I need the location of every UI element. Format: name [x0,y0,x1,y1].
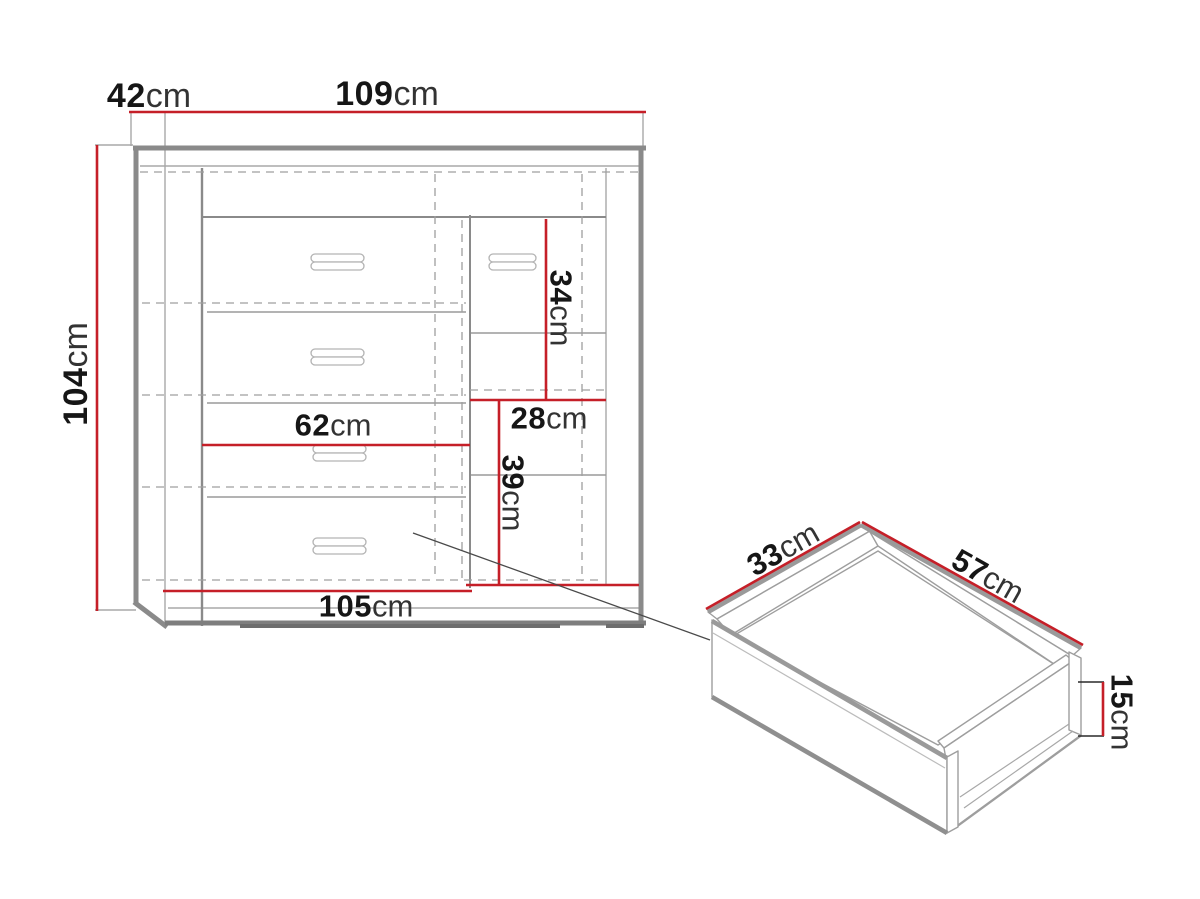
drawer-handle [313,538,366,554]
dim-drawer-height-label: 15cm [1107,674,1138,751]
dim-unit: cm [544,305,579,346]
drawer-handle [311,349,364,365]
dim-unit: cm [393,75,438,113]
dim-right-lower-height-label: 39cm [498,455,529,532]
cabinet-dimension-lines [97,112,646,611]
dim-value: 34 [544,270,579,305]
dim-unit: cm [330,408,371,443]
dim-depth-label: 42cm [107,79,191,113]
dim-value: 62 [295,408,330,443]
diagram-linework [0,0,1200,899]
drawer-handle-small [489,254,536,270]
cabinet-front-view [95,112,646,627]
drawer-handle [313,445,366,461]
dim-value: 15 [1105,674,1140,709]
dim-value: 104 [57,368,95,426]
dim-right-inner-width-label: 28cm [511,403,588,434]
dim-unit: cm [372,589,413,624]
dim-unit: cm [1105,709,1140,750]
dim-drawer-front-width-label: 62cm [295,410,372,441]
dim-value: 39 [496,455,531,490]
dim-height-label: 104cm [59,322,93,426]
dim-unit: cm [57,322,95,367]
dim-interior-width-label: 105cm [319,591,414,622]
dim-value: 28 [511,401,546,436]
dim-width-label: 109cm [335,77,439,111]
dim-value: 42 [107,77,146,115]
dim-unit: cm [496,490,531,531]
dim-value: 105 [319,589,372,624]
dim-value: 109 [335,75,393,113]
dim-unit: cm [146,77,191,115]
dim-unit: cm [546,401,587,436]
diagram-canvas: 42cm 109cm 104cm 34cm 28cm 39cm 62cm 105… [0,0,1200,899]
dim-right-upper-height-label: 34cm [546,270,577,347]
drawer-handle [311,254,364,270]
